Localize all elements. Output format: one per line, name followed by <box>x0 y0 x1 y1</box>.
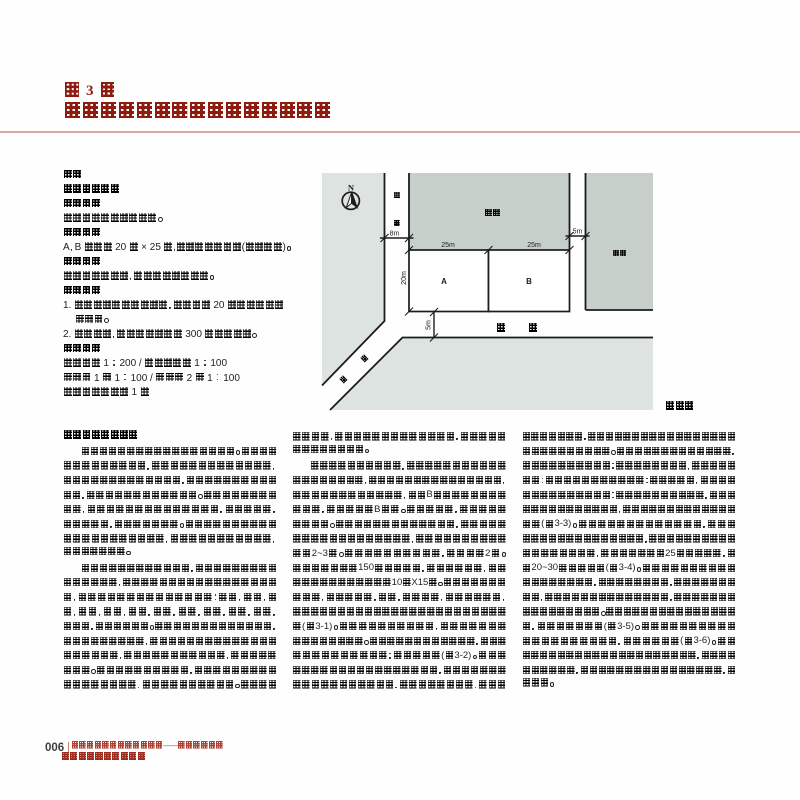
svg-text:5m: 5m <box>426 320 433 330</box>
svg-text:20m: 20m <box>401 271 408 285</box>
svg-text:25m: 25m <box>441 242 455 249</box>
svg-text:25m: 25m <box>527 242 541 249</box>
svg-text:A: A <box>441 277 447 286</box>
svg-text:N: N <box>348 183 355 193</box>
svg-text:8m: 8m <box>390 231 400 238</box>
svg-text:B: B <box>526 277 532 286</box>
svg-text:5m: 5m <box>573 229 583 236</box>
